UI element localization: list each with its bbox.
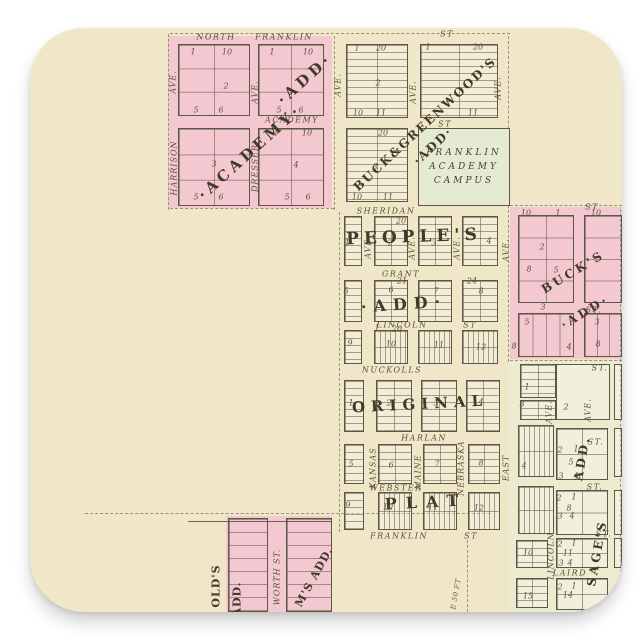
block-number: 1 — [269, 48, 274, 57]
street-label-vertical: AVE. — [494, 76, 503, 100]
city-block — [423, 444, 457, 484]
block-number: 20 — [378, 129, 388, 138]
city-block — [468, 444, 500, 484]
block-number: 5 — [193, 193, 198, 202]
block-number: 8 — [526, 265, 531, 274]
street-label: LAIRD — [553, 569, 587, 578]
block-number: 10 — [302, 129, 312, 138]
block-number: 2 — [387, 239, 392, 248]
block-number: 10 — [591, 209, 601, 218]
block-number: 10 — [521, 209, 531, 218]
block-number: 9 — [345, 501, 350, 510]
block-number: 11 — [434, 341, 444, 350]
block-number: 6 — [305, 193, 310, 202]
street-label: SHERIDAN — [357, 207, 416, 216]
street-label: FRANKLIN — [370, 532, 428, 541]
block-number: 10 — [352, 193, 362, 202]
block-number: 2 — [563, 403, 568, 412]
block-number: 21 — [397, 277, 407, 286]
street-label-vertical: LINCOLN — [547, 532, 556, 579]
city-block — [614, 490, 622, 535]
block-number: 8 — [595, 340, 600, 349]
block-number: 3 — [372, 163, 377, 172]
block-number: 2 — [557, 446, 562, 455]
city-block — [614, 428, 622, 477]
block-number: 20 — [376, 44, 386, 53]
block-number: 1 — [573, 445, 578, 454]
street-label: NORTH — [196, 33, 235, 42]
block-number: 11 — [563, 549, 573, 558]
block-number: 3 — [558, 472, 563, 481]
city-block — [518, 486, 554, 534]
block-number: 3 — [594, 318, 599, 327]
boundary-line — [339, 212, 340, 532]
street-label-vertical: AVE. — [584, 398, 593, 422]
boundary-line — [510, 205, 622, 206]
block-number: 3 — [431, 239, 436, 248]
street-label-vertical: KANSAS — [369, 447, 378, 488]
block-number: 10 — [523, 549, 533, 558]
block-number: 1 — [273, 129, 278, 138]
city-block — [344, 492, 364, 530]
block-number: 3 — [557, 512, 562, 521]
block-number: 6 — [218, 106, 223, 115]
block-number: 10 — [303, 48, 313, 57]
block-number: 3 — [558, 559, 563, 568]
street-label: NUCKOLLS — [362, 366, 422, 375]
block-number: 6 — [388, 461, 393, 470]
block-number: 4 — [569, 512, 574, 521]
block-number: 11 — [428, 503, 438, 512]
block-number: 7 — [433, 287, 438, 296]
block-number: 2 — [557, 540, 562, 549]
street-label-vertical: AVE. — [502, 238, 511, 262]
block-number: 9 — [347, 339, 352, 348]
city-block — [614, 364, 622, 420]
block-number: 12 — [474, 504, 484, 513]
block-number: 1 — [354, 44, 359, 53]
block-number: 4 — [567, 559, 572, 568]
city-block — [584, 313, 622, 357]
street-label-vertical: WORTH ST. — [273, 549, 282, 606]
block-number: 20 — [396, 217, 406, 226]
block-number: 5 — [568, 458, 573, 467]
block-number: 10 — [383, 503, 393, 512]
block-number: 7 — [434, 460, 439, 469]
block-number: 2 — [557, 583, 562, 592]
street-label: HARLAN — [401, 434, 447, 443]
block-number: 4 — [293, 161, 298, 170]
block-number: 5 — [524, 318, 529, 327]
block-number: 8 — [511, 342, 516, 351]
addition-name: ADD. — [231, 581, 244, 612]
block-number: 2 — [375, 79, 380, 88]
block-number: 12 — [476, 343, 486, 352]
block-number: 11 — [376, 109, 386, 118]
block-number: 1 — [190, 48, 195, 57]
block-number: 3 — [540, 303, 545, 312]
block-number: 5 — [553, 266, 558, 275]
block-number: 2 — [556, 494, 561, 503]
block-number: 4 — [566, 343, 571, 352]
campus-label-line2: ACADEMY — [429, 162, 499, 172]
block-number: 1 — [571, 493, 576, 502]
block-number: 1 — [348, 399, 353, 408]
block-number: 4 — [486, 237, 491, 246]
street-label: ST. — [587, 483, 604, 492]
block-number: 3 — [519, 400, 524, 409]
block-number: 1 — [571, 539, 576, 548]
street-label-vertical: HARRISON — [170, 141, 179, 196]
block-number: 20 — [473, 43, 483, 52]
block-number: 4 — [478, 398, 483, 407]
block-number: 5 — [284, 193, 289, 202]
street-label-vertical: AVE. — [545, 400, 554, 424]
block-number: 5 — [193, 106, 198, 115]
block-number: 1 — [374, 324, 379, 333]
block-number: 1 — [524, 383, 529, 392]
addition-name: OLD'S — [210, 564, 223, 607]
block-number: 5 — [343, 287, 348, 296]
dimension-label: E 50 FT — [449, 578, 462, 610]
city-block — [344, 444, 364, 484]
block-number: 1 — [555, 209, 560, 218]
street-label-vertical: NEBRASKA — [457, 440, 466, 495]
street-label: ST — [440, 30, 454, 39]
block-number: 11 — [468, 109, 478, 118]
sticker-paper: FRANKLIN ACADEMY CAMPUS NORTHFRANKLINACA… — [30, 28, 622, 612]
block-number: 8 — [478, 459, 483, 468]
block-number: 2 — [223, 82, 228, 91]
boundary-line — [170, 208, 334, 209]
block-number: 4 — [521, 462, 526, 471]
city-block — [520, 364, 556, 398]
block-number: 2 — [386, 399, 391, 408]
block-number: 1 — [571, 582, 576, 591]
street-label: ST — [464, 532, 478, 541]
city-block — [614, 538, 622, 568]
boundary-line — [510, 360, 622, 361]
block-number: 10 — [386, 340, 396, 349]
plat-map: FRANKLIN ACADEMY CAMPUS NORTHFRANKLINACA… — [30, 28, 622, 612]
block-number: 20 — [392, 325, 402, 334]
street-label: FRANKLIN — [255, 33, 313, 42]
block-number: 8 — [478, 287, 483, 296]
street-label-vertical: MAINE — [414, 455, 423, 490]
campus-label-line3: CAMPUS — [434, 176, 494, 186]
block-number: 1 — [344, 239, 349, 248]
block-number: 24 — [467, 277, 477, 286]
block-number: 3 — [211, 160, 216, 169]
city-block — [378, 444, 412, 484]
block-number: 3 — [433, 399, 438, 408]
street-label-vertical: AVE. — [251, 80, 260, 104]
city-block — [178, 44, 250, 116]
block-number: 1 — [425, 43, 430, 52]
block-number: 5 — [276, 106, 281, 115]
street-label-vertical: AVE. — [334, 73, 343, 97]
block-number: 10 — [222, 48, 232, 57]
block-number: 6 — [388, 286, 393, 295]
block-number: 5 — [348, 460, 353, 469]
boundary-line — [467, 540, 468, 612]
block-number: 4 — [573, 472, 578, 481]
street-label-vertical: AVE. — [169, 70, 178, 94]
street-label-vertical: AVE. — [409, 80, 418, 104]
block-number: 11 — [383, 193, 393, 202]
block-number: 14 — [563, 591, 573, 600]
block-number: 10 — [353, 109, 363, 118]
block-number: 2 — [539, 243, 544, 252]
page-background: { "palette":{"pink":"#f3c8d1","green":"#… — [0, 0, 644, 644]
block-number: 15 — [523, 592, 533, 601]
street-label: ST — [463, 321, 477, 330]
block-number: 6 — [218, 193, 223, 202]
street-label: ST. — [592, 364, 609, 373]
block-number: 6 — [298, 106, 303, 115]
street-label-vertical: EAST — [502, 455, 511, 481]
